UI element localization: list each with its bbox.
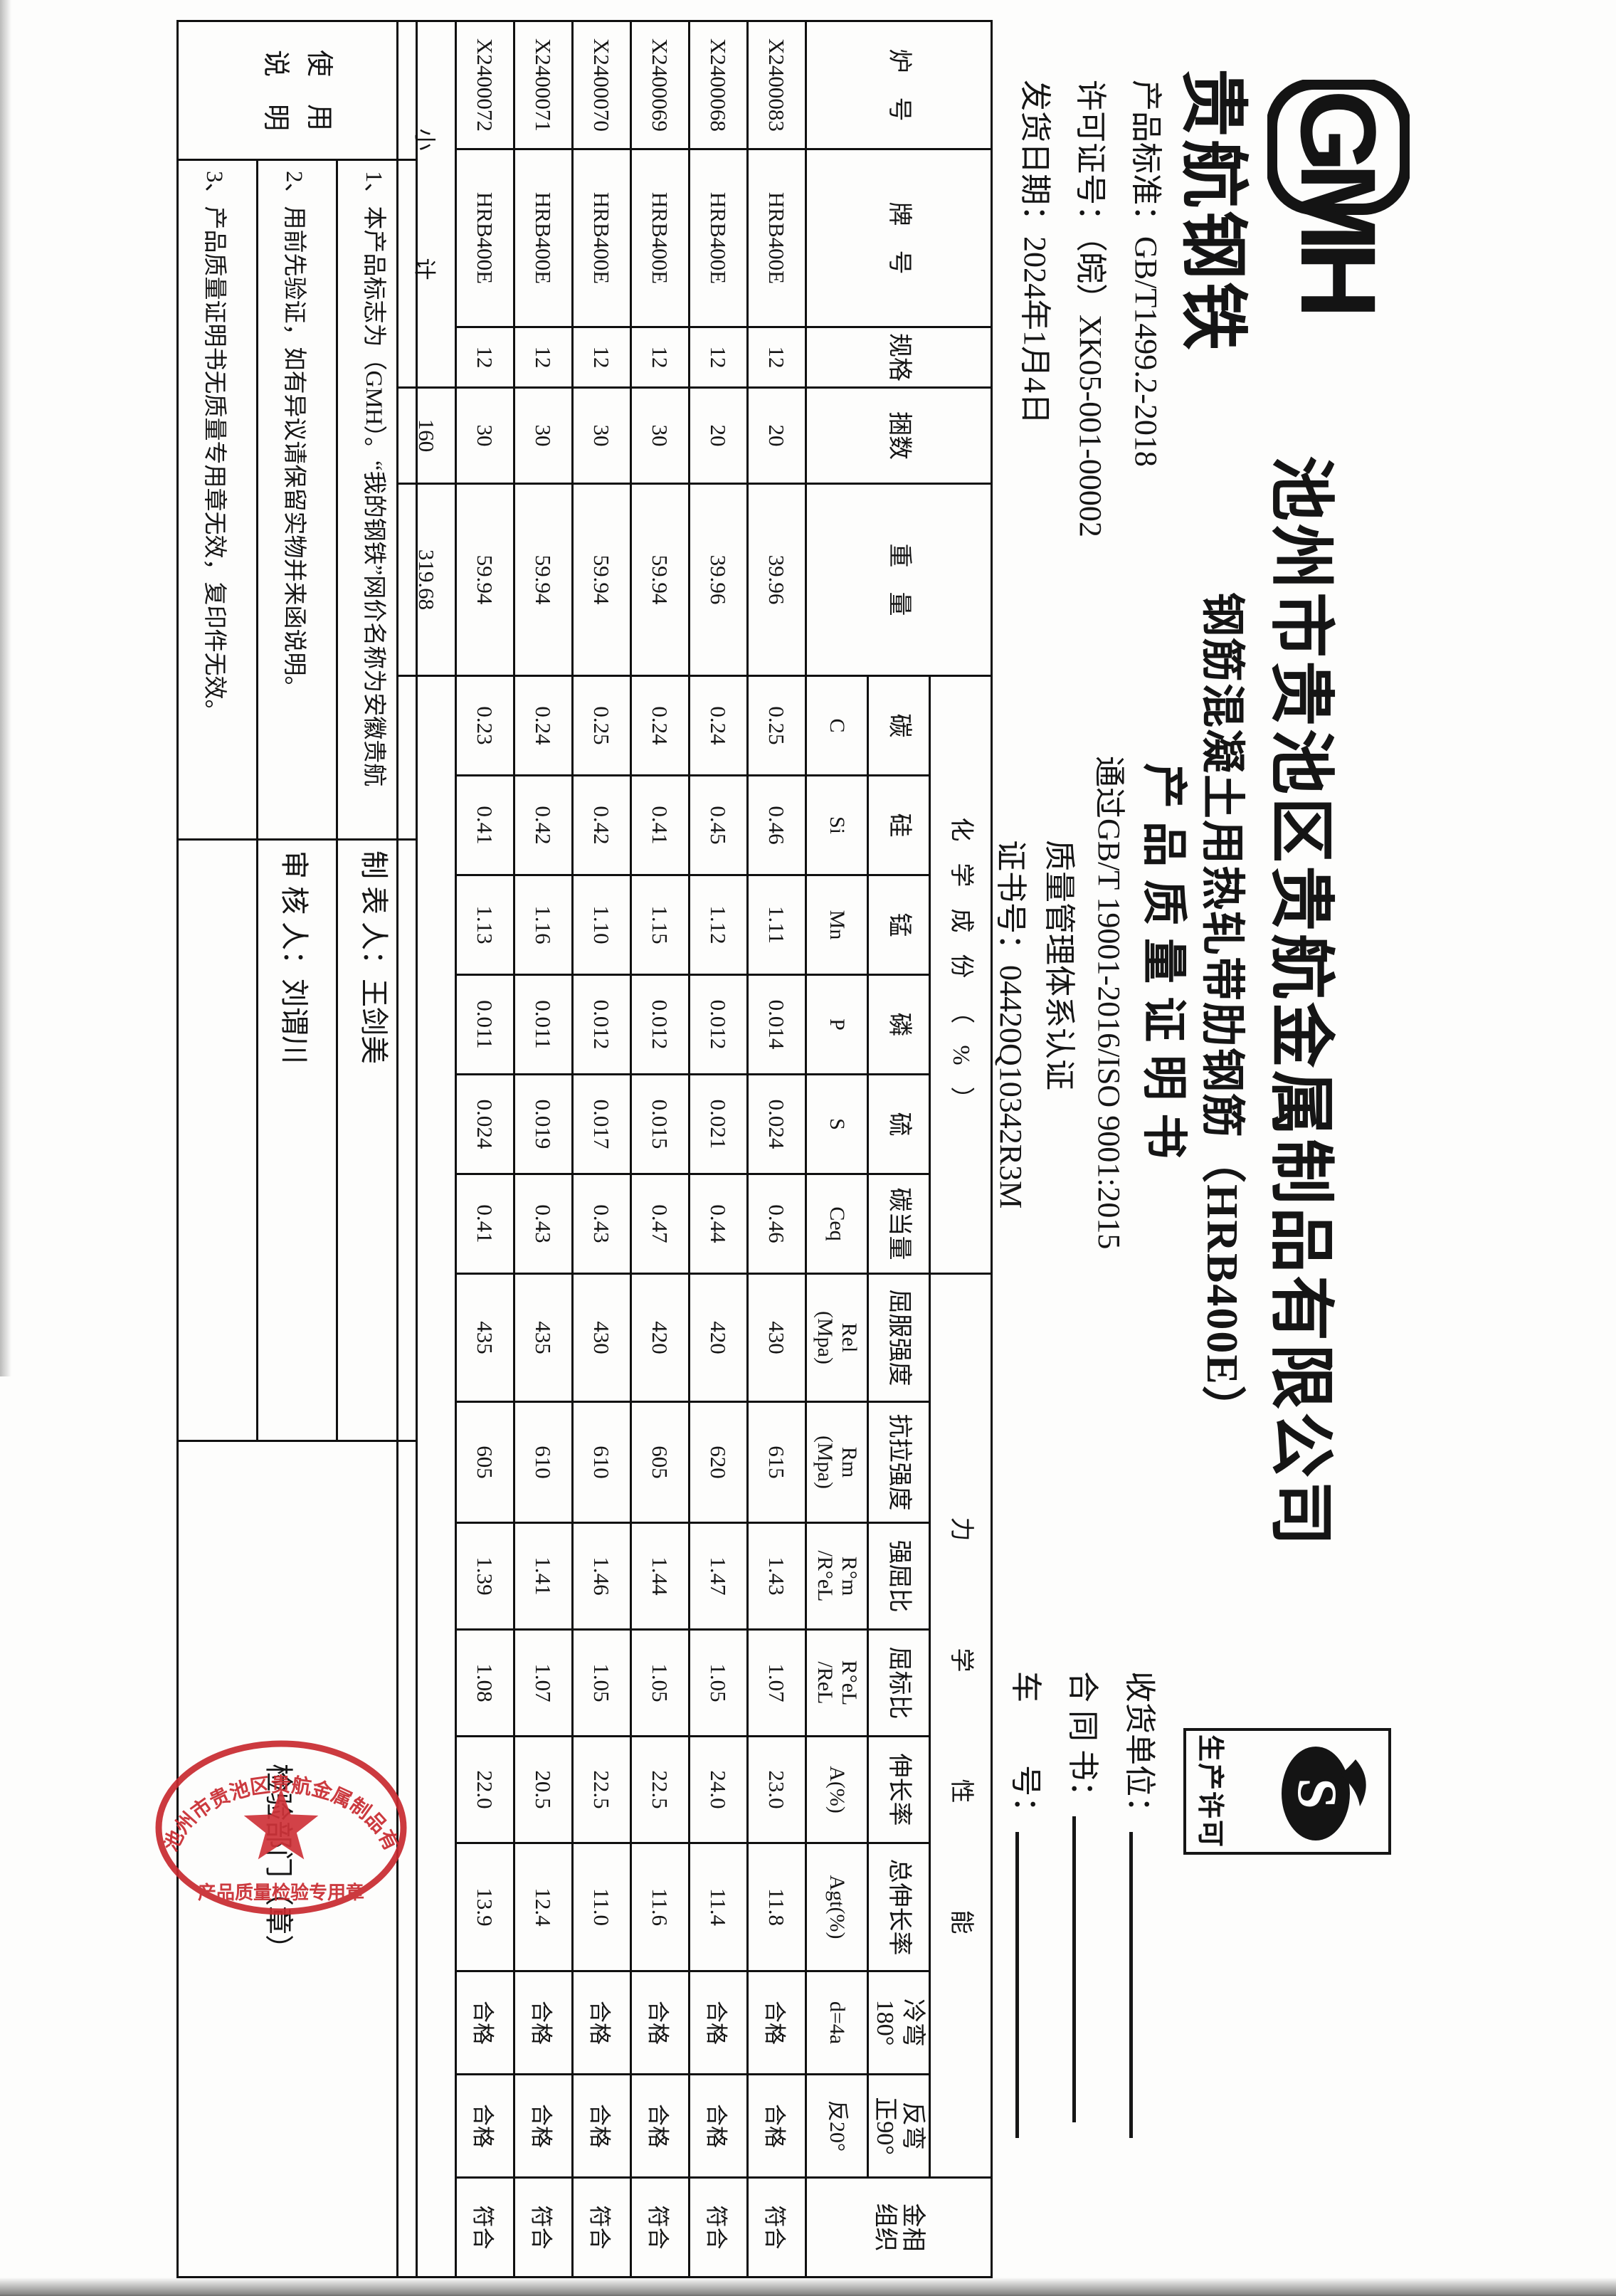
cell-r3-c18: 合格 bbox=[573, 2075, 631, 2178]
cell-r4-c14: 1.07 bbox=[514, 1630, 573, 1737]
empty-signature-cell bbox=[178, 840, 258, 1441]
cell-r4-c12: 610 bbox=[514, 1402, 573, 1523]
stamp-ring-bottom-text: 产品质量检验专用章 bbox=[198, 1882, 364, 1903]
cell-r5-c12: 605 bbox=[456, 1402, 514, 1523]
cell-r0-c6: 0.46 bbox=[748, 776, 806, 875]
contract-blank[interactable] bbox=[1072, 1816, 1110, 2122]
col-name-16: 总伸长率 bbox=[868, 1843, 930, 1971]
col-name-17: 冷弯180° bbox=[868, 1971, 930, 2075]
cell-r0-c1: HRB400E bbox=[748, 149, 806, 327]
cell-r0-c4: 39.96 bbox=[748, 484, 806, 676]
cell-r3-c3: 30 bbox=[573, 388, 631, 484]
cell-r3-c4: 59.94 bbox=[573, 484, 631, 676]
cell-r5-c16: 13.9 bbox=[456, 1843, 514, 1971]
field-consignee: 收货单位： bbox=[1111, 1671, 1168, 2138]
cell-r0-c16: 11.8 bbox=[748, 1843, 806, 1971]
cell-r5-c11: 435 bbox=[456, 1274, 514, 1402]
table-row-X2400070: X2400070HRB400E123059.940.250.421.100.01… bbox=[573, 21, 631, 2277]
cell-r4-c2: 12 bbox=[514, 327, 573, 388]
cell-r4-c1: HRB400E bbox=[514, 149, 573, 327]
cell-r5-c0: X2400072 bbox=[456, 21, 514, 149]
table-row-X2400072: X2400072HRB400E123059.940.230.411.130.01… bbox=[456, 21, 514, 2277]
cell-r5-c6: 0.41 bbox=[456, 776, 514, 875]
cell-r4-c11: 435 bbox=[514, 1274, 573, 1402]
cell-r2-c18: 合格 bbox=[631, 2075, 690, 2178]
cell-r3-c10: 0.43 bbox=[573, 1174, 631, 1274]
cell-r5-c4: 59.94 bbox=[456, 484, 514, 676]
quality-inspection-stamp: 池州市贵池区贵航金属制品有限公司 产品质量检验专用章 bbox=[146, 1732, 416, 1924]
col-symbol-14: R°eL/ReL bbox=[806, 1630, 868, 1737]
cell-r3-c14: 1.05 bbox=[573, 1630, 631, 1737]
cell-r4-c10: 0.43 bbox=[514, 1174, 573, 1274]
col-name-10: 碳当量 bbox=[868, 1174, 930, 1274]
svg-text:GMH: GMH bbox=[1279, 90, 1398, 312]
field-truck: 车 号： bbox=[997, 1671, 1054, 2138]
cell-r0-c18: 合格 bbox=[748, 2075, 806, 2178]
cell-r4-c17: 合格 bbox=[514, 1971, 573, 2075]
usage-notes-label: 使 用 说 明 bbox=[178, 21, 417, 160]
cell-r0-c14: 1.07 bbox=[748, 1630, 806, 1737]
group-header-chemistry: 化学成份（%） bbox=[930, 676, 992, 1274]
truck-blank[interactable] bbox=[1015, 1832, 1053, 2138]
company-name: 池州市贵池区贵航金属制品有限公司 bbox=[1259, 455, 1354, 1549]
cell-r0-c7: 1.11 bbox=[748, 875, 806, 975]
iso-certification-line2: 质量管理体系认证 bbox=[1040, 840, 1085, 1090]
cell-r3-c15: 22.5 bbox=[573, 1737, 631, 1843]
col-symbol-9: S bbox=[806, 1075, 868, 1174]
cell-r5-c8: 0.011 bbox=[456, 975, 514, 1075]
meta-lines: 产品标准：GB/T1499.2-2018 许可证号：（皖）XK05-001-00… bbox=[1007, 80, 1173, 537]
cell-r1-c19: 符合 bbox=[690, 2178, 748, 2277]
product-name: 钢筋混凝土用热轧带肋钢筋（HRB400E） bbox=[1195, 592, 1259, 1431]
cell-r3-c1: HRB400E bbox=[573, 149, 631, 327]
cell-r1-c11: 420 bbox=[690, 1274, 748, 1402]
meta-standard: 产品标准：GB/T1499.2-2018 bbox=[1118, 80, 1173, 537]
cell-r2-c0: X2400069 bbox=[631, 21, 690, 149]
license-mark-label: 生产许可 bbox=[1193, 1734, 1232, 1848]
cell-r0-c12: 615 bbox=[748, 1402, 806, 1523]
col-symbol-18: 反20° bbox=[806, 2075, 868, 2178]
cell-r1-c18: 合格 bbox=[690, 2075, 748, 2178]
col-name-14: 屈标比 bbox=[868, 1630, 930, 1737]
brand-name: 贵航钢铁 bbox=[1170, 68, 1269, 353]
cell-r1-c6: 0.45 bbox=[690, 776, 748, 875]
col-name-7: 锰 bbox=[868, 875, 930, 975]
cell-r5-c2: 12 bbox=[456, 327, 514, 388]
table-row-X2400071: X2400071HRB400E123059.940.240.421.160.01… bbox=[514, 21, 573, 2277]
cell-r2-c4: 59.94 bbox=[631, 484, 690, 676]
col-symbol-7: Mn bbox=[806, 875, 868, 975]
gmh-logo-icon: GMH bbox=[1267, 80, 1410, 315]
meta-license: 许可证号：（皖）XK05-001-00002 bbox=[1062, 80, 1118, 537]
cell-r0-c17: 合格 bbox=[748, 1971, 806, 2075]
cell-r2-c2: 12 bbox=[631, 327, 690, 388]
cell-r3-c5: 0.25 bbox=[573, 676, 631, 776]
cell-r1-c10: 0.44 bbox=[690, 1174, 748, 1274]
cell-r4-c0: X2400071 bbox=[514, 21, 573, 149]
cell-r4-c15: 20.5 bbox=[514, 1737, 573, 1843]
table-row-X2400083: X2400083HRB400E122039.960.250.461.110.01… bbox=[748, 21, 806, 2277]
cell-r1-c2: 12 bbox=[690, 327, 748, 388]
svg-text:S: S bbox=[1287, 1778, 1348, 1808]
col-symbol-8: P bbox=[806, 975, 868, 1075]
cell-r3-c8: 0.012 bbox=[573, 975, 631, 1075]
auditor-row: 审 核 人：刘谓川 bbox=[258, 840, 337, 1441]
cell-r1-c1: HRB400E bbox=[690, 149, 748, 327]
iso-certification-line1: 通过GB/T 19001-2016/ISO 9001:2015 bbox=[1089, 756, 1135, 1249]
cell-r1-c14: 1.05 bbox=[690, 1630, 748, 1737]
col-name-12: 抗拉强度 bbox=[868, 1402, 930, 1523]
col-header-1: 牌 号 bbox=[806, 149, 992, 327]
col-symbol-15: A(%) bbox=[806, 1737, 868, 1843]
cell-r2-c16: 11.6 bbox=[631, 1843, 690, 1971]
cell-r5-c18: 合格 bbox=[456, 2075, 514, 2178]
cell-r5-c3: 30 bbox=[456, 388, 514, 484]
group-header-mechanical: 力学性能 bbox=[930, 1274, 992, 2178]
cell-r4-c8: 0.011 bbox=[514, 975, 573, 1075]
col-name-11: 屈服强度 bbox=[868, 1274, 930, 1402]
cell-r1-c8: 0.012 bbox=[690, 975, 748, 1075]
cell-r4-c7: 1.16 bbox=[514, 875, 573, 975]
cell-r3-c17: 合格 bbox=[573, 1971, 631, 2075]
certificate-number: 证书号：04420Q10342R3M bbox=[991, 840, 1037, 1208]
col-header-0: 炉 号 bbox=[806, 21, 992, 149]
cell-r4-c4: 59.94 bbox=[514, 484, 573, 676]
cell-r2-c13: 1.44 bbox=[631, 1523, 690, 1630]
col-header-3: 捆数 bbox=[806, 388, 992, 484]
preparer-name: 王剑美 bbox=[359, 979, 391, 1064]
col-symbol-12: Rm(Mpa) bbox=[806, 1402, 868, 1523]
cell-r2-c17: 合格 bbox=[631, 1971, 690, 2075]
cell-r1-c5: 0.24 bbox=[690, 676, 748, 776]
cell-r2-c11: 420 bbox=[631, 1274, 690, 1402]
cell-r5-c19: 符合 bbox=[456, 2178, 514, 2277]
cell-r4-c5: 0.24 bbox=[514, 676, 573, 776]
cell-r4-c13: 1.41 bbox=[514, 1523, 573, 1630]
cell-r1-c16: 11.4 bbox=[690, 1843, 748, 1971]
cell-r5-c13: 1.39 bbox=[456, 1523, 514, 1630]
cell-r1-c0: X2400068 bbox=[690, 21, 748, 149]
cell-r4-c18: 合格 bbox=[514, 2075, 573, 2178]
cell-r0-c9: 0.024 bbox=[748, 1075, 806, 1174]
usage-note-2: 2、用前先验证，如有异议请保留实物并来函说明。 bbox=[258, 160, 337, 840]
cell-r1-c4: 39.96 bbox=[690, 484, 748, 676]
col-name-15: 伸长率 bbox=[868, 1737, 930, 1843]
col-symbol-13: R°m/R°eL bbox=[806, 1523, 868, 1630]
col-symbol-11: Rel(Mpa) bbox=[806, 1274, 868, 1402]
cell-r1-c7: 1.12 bbox=[690, 875, 748, 975]
cell-r0-c13: 1.43 bbox=[748, 1523, 806, 1630]
s-quality-icon: S bbox=[1260, 1738, 1381, 1845]
stamp-area: 检验部门（章） 池州市贵池区贵航金属制品有限公司 产品质量检验专用章 bbox=[178, 1441, 417, 2277]
cell-r4-c3: 30 bbox=[514, 388, 573, 484]
col-symbol-17: d=4a bbox=[806, 1971, 868, 2075]
cell-r3-c13: 1.46 bbox=[573, 1523, 631, 1630]
footer-table: 使 用 说 明 1、本产品标志为（GMH）。“我的钢铁”网价名称为安徽贵航 制 … bbox=[176, 20, 418, 2278]
cell-r3-c2: 12 bbox=[573, 327, 631, 388]
cell-r0-c0: X2400083 bbox=[748, 21, 806, 149]
col-name-13: 强屈比 bbox=[868, 1523, 930, 1630]
cell-r0-c5: 0.25 bbox=[748, 676, 806, 776]
document-title: 产品质量证明书 bbox=[1135, 763, 1200, 1171]
cell-r5-c5: 0.23 bbox=[456, 676, 514, 776]
cell-r0-c19: 符合 bbox=[748, 2178, 806, 2277]
cell-r5-c14: 1.08 bbox=[456, 1630, 514, 1737]
cell-r1-c17: 合格 bbox=[690, 1971, 748, 2075]
cell-r5-c1: HRB400E bbox=[456, 149, 514, 327]
cell-r2-c15: 22.5 bbox=[631, 1737, 690, 1843]
meta-shipdate: 发货日期：2024年1月4日 bbox=[1007, 80, 1062, 537]
col-header-19: 金相组织 bbox=[806, 2178, 992, 2277]
cell-r2-c12: 605 bbox=[631, 1402, 690, 1523]
cell-r0-c11: 430 bbox=[748, 1274, 806, 1402]
col-header-2: 规格 bbox=[806, 327, 992, 388]
cell-r4-c9: 0.019 bbox=[514, 1075, 573, 1174]
cell-r3-c11: 430 bbox=[573, 1274, 631, 1402]
production-license-mark: S 生产许可 bbox=[1183, 1728, 1391, 1855]
cell-r3-c12: 610 bbox=[573, 1402, 631, 1523]
table-row-X2400068: X2400068HRB400E122039.960.240.451.120.01… bbox=[690, 21, 748, 2277]
usage-note-1: 1、本产品标志为（GMH）。“我的钢铁”网价名称为安徽贵航 bbox=[337, 160, 417, 840]
col-name-18: 反弯正90° bbox=[868, 2075, 930, 2178]
cell-r0-c10: 0.46 bbox=[748, 1174, 806, 1274]
cell-r3-c19: 符合 bbox=[573, 2178, 631, 2277]
cell-r2-c3: 30 bbox=[631, 388, 690, 484]
col-name-6: 硅 bbox=[868, 776, 930, 875]
cell-r0-c8: 0.014 bbox=[748, 975, 806, 1075]
cell-r3-c9: 0.017 bbox=[573, 1075, 631, 1174]
table-row-X2400069: X2400069HRB400E123059.940.240.411.150.01… bbox=[631, 21, 690, 2277]
cell-r5-c10: 0.41 bbox=[456, 1174, 514, 1274]
cell-r5-c17: 合格 bbox=[456, 1971, 514, 2075]
cell-r2-c1: HRB400E bbox=[631, 149, 690, 327]
cell-r3-c16: 11.0 bbox=[573, 1843, 631, 1971]
col-symbol-5: C bbox=[806, 676, 868, 776]
usage-note-3: 3、产品质量证明书无质量专用章无效，复印件无效。 bbox=[178, 160, 258, 840]
cell-r3-c7: 1.10 bbox=[573, 875, 631, 975]
cell-r0-c15: 23.0 bbox=[748, 1737, 806, 1843]
cell-r4-c6: 0.42 bbox=[514, 776, 573, 875]
col-name-8: 磷 bbox=[868, 975, 930, 1075]
cell-r0-c3: 20 bbox=[748, 388, 806, 484]
cell-r2-c8: 0.012 bbox=[631, 975, 690, 1075]
cell-r5-c7: 1.13 bbox=[456, 875, 514, 975]
cell-r4-c16: 12.4 bbox=[514, 1843, 573, 1971]
field-contract: 合 同 书： bbox=[1054, 1671, 1111, 2138]
quality-table-wrap: 炉 号牌 号规格捆数重 量化学成份（%）力学性能金相组织碳硅锰磷硫碳当量屈服强度… bbox=[396, 20, 993, 2278]
cell-r2-c14: 1.05 bbox=[631, 1630, 690, 1737]
cell-r3-c6: 0.42 bbox=[573, 776, 631, 875]
cell-r2-c9: 0.015 bbox=[631, 1075, 690, 1174]
quality-table: 炉 号牌 号规格捆数重 量化学成份（%）力学性能金相组织碳硅锰磷硫碳当量屈服强度… bbox=[396, 20, 993, 2278]
certificate-page: GMH 贵航钢铁 产品标准：GB/T1499.2-2018 许可证号：（皖）XK… bbox=[0, 0, 1616, 2295]
cell-r1-c3: 20 bbox=[690, 388, 748, 484]
cell-r5-c9: 0.024 bbox=[456, 1075, 514, 1174]
cell-r1-c15: 24.0 bbox=[690, 1737, 748, 1843]
col-name-5: 碳 bbox=[868, 676, 930, 776]
consignee-fields: 收货单位： 合 同 书： 车 号： bbox=[997, 1671, 1168, 2138]
cell-r3-c0: X2400070 bbox=[573, 21, 631, 149]
cell-r0-c2: 12 bbox=[748, 327, 806, 388]
cell-r2-c7: 1.15 bbox=[631, 875, 690, 975]
consignee-blank[interactable] bbox=[1129, 1832, 1167, 2138]
footer-block: 使 用 说 明 1、本产品标志为（GMH）。“我的钢铁”网价名称为安徽贵航 制 … bbox=[176, 20, 418, 2278]
cell-r5-c15: 22.0 bbox=[456, 1737, 514, 1843]
cell-r4-c19: 符合 bbox=[514, 2178, 573, 2277]
cell-r1-c13: 1.47 bbox=[690, 1523, 748, 1630]
col-symbol-10: Ceq bbox=[806, 1174, 868, 1274]
auditor-name: 刘谓川 bbox=[279, 979, 311, 1064]
cell-r1-c9: 0.021 bbox=[690, 1075, 748, 1174]
cell-r1-c12: 620 bbox=[690, 1402, 748, 1523]
cell-r2-c6: 0.41 bbox=[631, 776, 690, 875]
cell-r2-c10: 0.47 bbox=[631, 1174, 690, 1274]
col-symbol-6: Si bbox=[806, 776, 868, 875]
col-symbol-16: Agt(%) bbox=[806, 1843, 868, 1971]
col-header-4: 重 量 bbox=[806, 484, 992, 676]
preparer-row: 制 表 人：王剑美 bbox=[337, 840, 417, 1441]
cell-r2-c19: 符合 bbox=[631, 2178, 690, 2277]
col-name-9: 硫 bbox=[868, 1075, 930, 1174]
cell-r2-c5: 0.24 bbox=[631, 676, 690, 776]
